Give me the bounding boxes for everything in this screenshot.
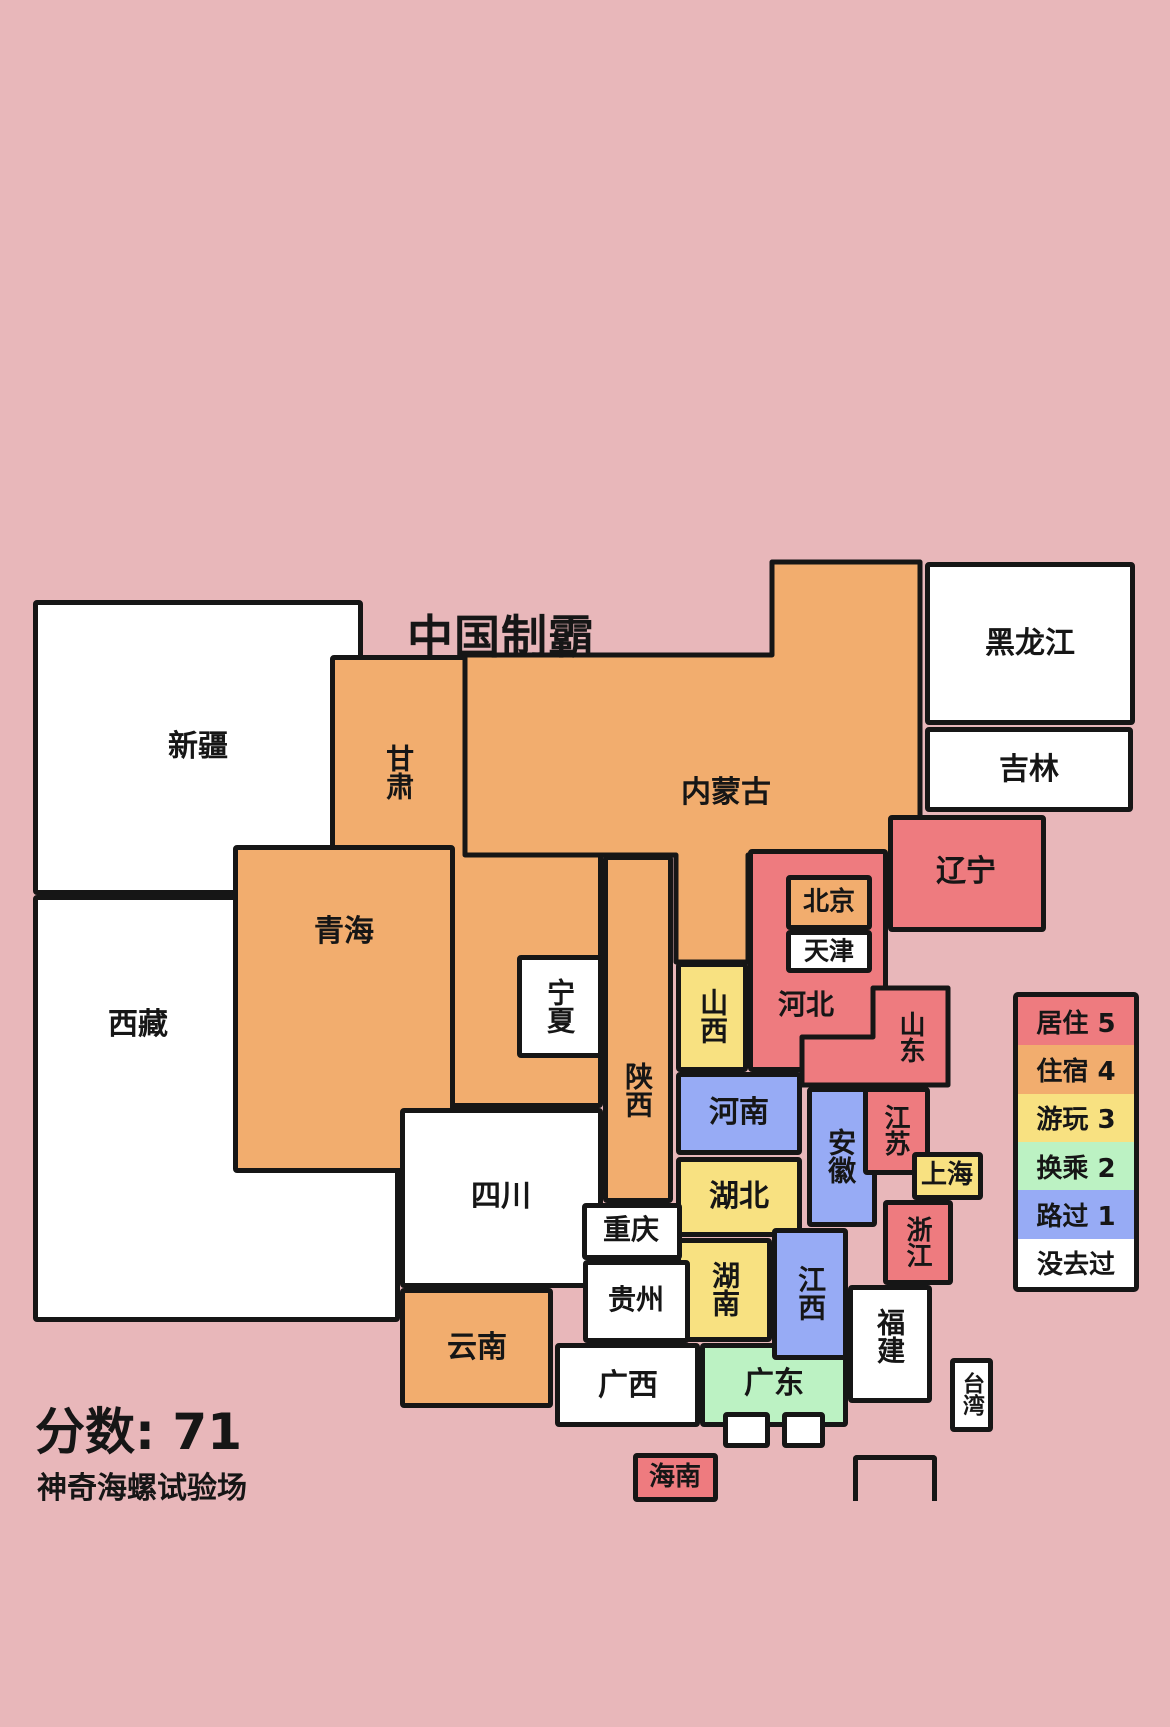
region-shaanxi[interactable] xyxy=(603,855,673,1203)
status-legend: 居住 5住宿 4游玩 3换乘 2路过 1没去过 xyxy=(1013,992,1139,1292)
region-taiwan[interactable] xyxy=(950,1358,993,1432)
region-shandong-shape[interactable] xyxy=(802,988,948,1085)
region-hubei[interactable] xyxy=(676,1157,802,1237)
region-shanxi[interactable] xyxy=(676,962,748,1072)
legend-item-label: 居住 5 xyxy=(1036,1003,1115,1040)
region-jiangxi[interactable] xyxy=(772,1228,848,1360)
region-hainan[interactable] xyxy=(633,1453,718,1502)
region-yunnan[interactable] xyxy=(400,1288,553,1408)
region-guangxi[interactable] xyxy=(555,1343,700,1427)
legend-item-4: 住宿 4 xyxy=(1018,1045,1134,1093)
legend-item-5: 居住 5 xyxy=(1018,997,1134,1045)
region-liaoning[interactable] xyxy=(888,815,1046,932)
legend-item-0: 没去过 xyxy=(1018,1239,1134,1287)
region-zhejiang[interactable] xyxy=(883,1200,953,1285)
region-henan[interactable] xyxy=(676,1072,802,1155)
region-macau[interactable] xyxy=(782,1412,825,1448)
legend-item-label: 游玩 3 xyxy=(1036,1099,1115,1136)
region-sichuan[interactable] xyxy=(400,1108,603,1288)
legend-item-2: 换乘 2 xyxy=(1018,1142,1134,1190)
region-chongqing[interactable] xyxy=(582,1203,682,1260)
legend-item-3: 游玩 3 xyxy=(1018,1094,1134,1142)
legend-item-label: 路过 1 xyxy=(1036,1196,1115,1233)
legend-item-1: 路过 1 xyxy=(1018,1190,1134,1238)
watermark-subtitle: 神奇海螺试验场 xyxy=(37,1463,247,1507)
page-title: 中国制霸 xyxy=(407,601,595,667)
region-hunan[interactable] xyxy=(676,1238,772,1342)
region-ningxia[interactable] xyxy=(517,955,603,1058)
legend-item-label: 换乘 2 xyxy=(1036,1148,1115,1185)
region-fujian[interactable] xyxy=(848,1285,932,1403)
legend-item-label: 没去过 xyxy=(1037,1244,1115,1281)
legend-item-label: 住宿 4 xyxy=(1036,1051,1115,1088)
region-guizhou[interactable] xyxy=(583,1260,690,1343)
region-shanghai[interactable] xyxy=(912,1152,983,1200)
south-china-sea-outline-icon xyxy=(853,1455,937,1501)
region-hongkong[interactable] xyxy=(723,1412,770,1448)
region-tianjin[interactable] xyxy=(786,930,872,973)
region-jilin[interactable] xyxy=(925,727,1133,812)
score-text: 分数: 71 xyxy=(35,1392,242,1464)
region-shandong[interactable] xyxy=(802,988,948,1085)
region-heilongjiang[interactable] xyxy=(925,562,1135,725)
region-beijing[interactable] xyxy=(786,875,872,930)
map-canvas: 中国制霸 分数: 71 神奇海螺试验场 居住 5住宿 4游玩 3换乘 2路过 1… xyxy=(0,0,1170,1727)
